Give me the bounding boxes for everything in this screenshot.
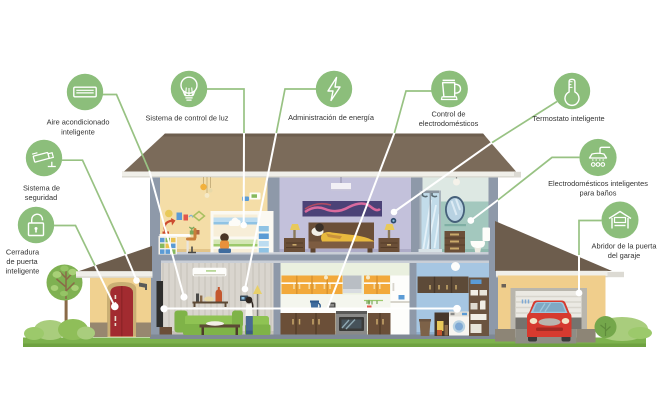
svg-text:Aire acondicionado: Aire acondicionado xyxy=(47,117,110,126)
svg-text:para baños: para baños xyxy=(580,189,617,198)
svg-text:Cerradura: Cerradura xyxy=(6,248,40,257)
svg-text:inteligente: inteligente xyxy=(61,128,95,137)
svg-text:del garaje: del garaje xyxy=(608,251,640,260)
svg-text:Control de: Control de xyxy=(431,110,465,119)
svg-text:Abridor de la puerta: Abridor de la puerta xyxy=(592,241,658,250)
svg-text:Electrodomésticos inteligentes: Electrodomésticos inteligentes xyxy=(548,179,648,188)
svg-text:Sistema de: Sistema de xyxy=(23,184,60,193)
svg-text:Termostato inteligente: Termostato inteligente xyxy=(532,114,604,123)
svg-text:electrodomésticos: electrodomésticos xyxy=(419,119,479,128)
svg-text:de puerta: de puerta xyxy=(6,257,38,266)
svg-text:Administración de energía: Administración de energía xyxy=(288,113,375,122)
svg-text:Sistema de control de luz: Sistema de control de luz xyxy=(146,114,229,123)
svg-text:inteligente: inteligente xyxy=(6,267,40,276)
svg-text:seguridad: seguridad xyxy=(25,193,57,202)
